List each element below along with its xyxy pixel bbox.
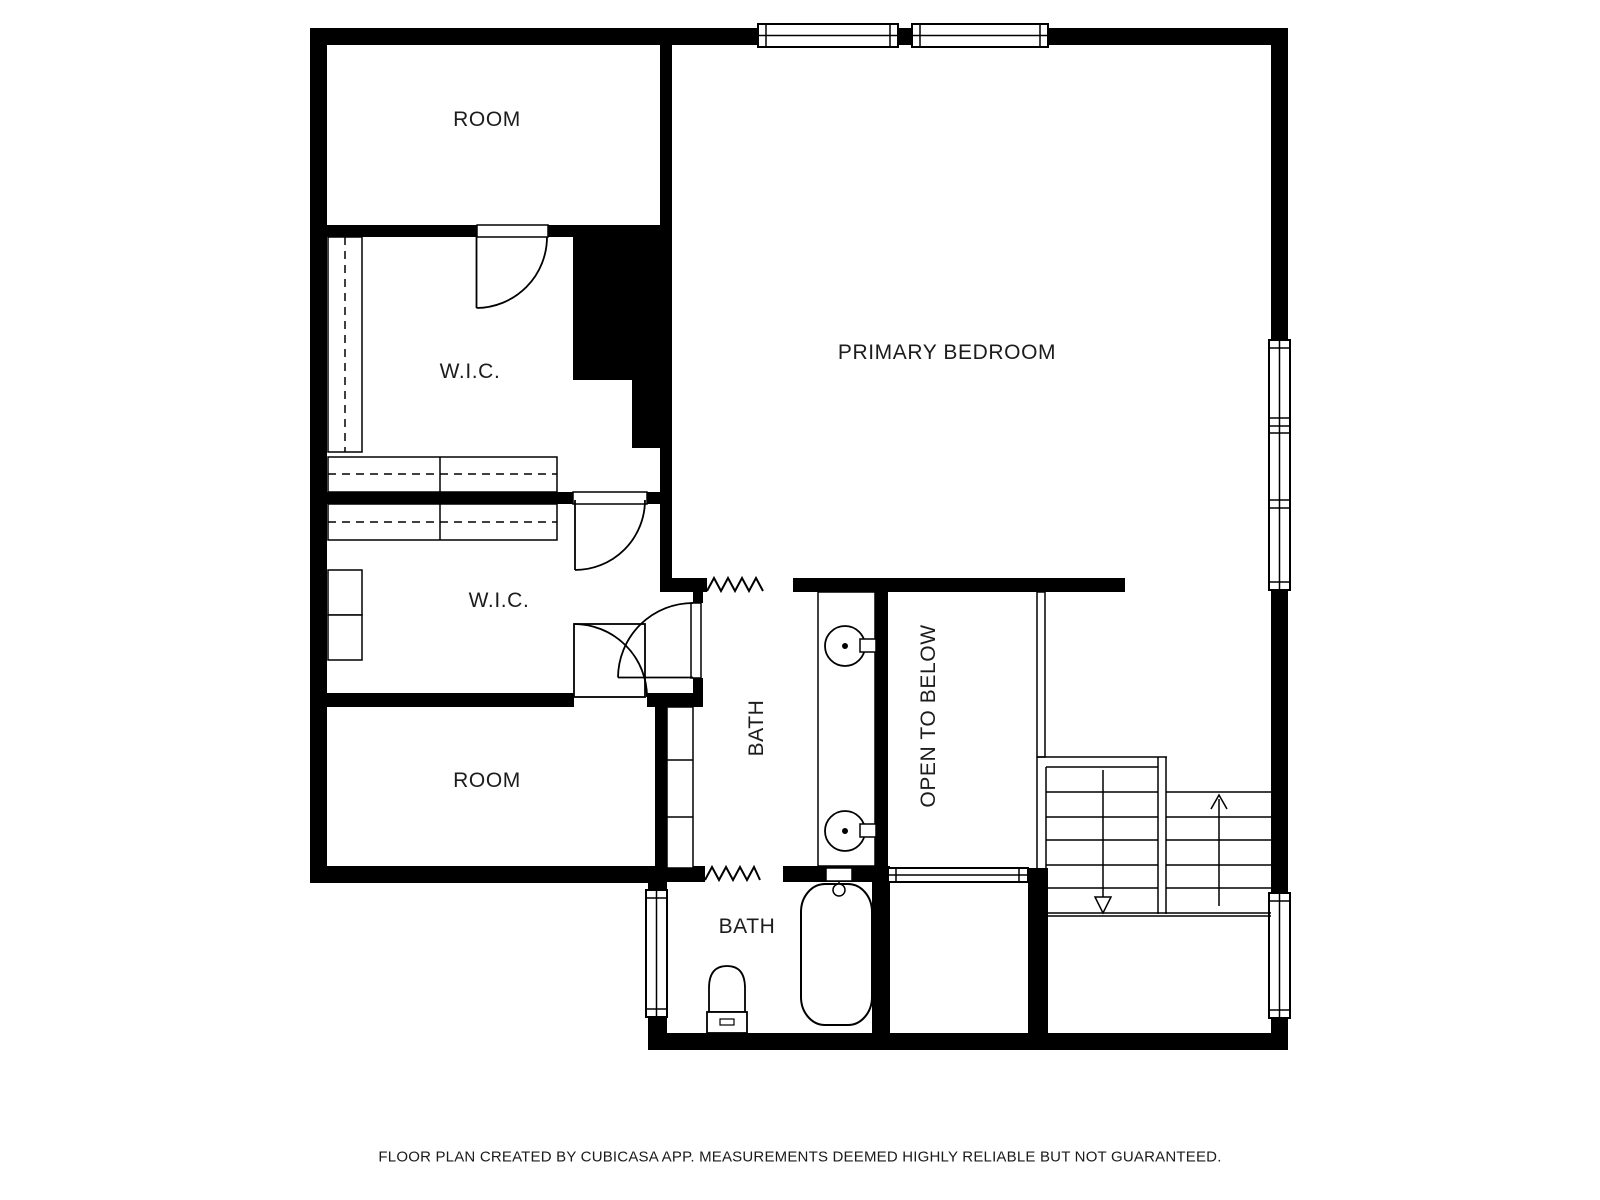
label-wic-lower: W.I.C.	[469, 589, 530, 613]
window-icon	[646, 890, 667, 1017]
closet-shelf-icon	[667, 707, 693, 868]
label-room-top: ROOM	[453, 108, 521, 132]
closet-shelf-icon	[328, 504, 557, 540]
bath-fixtures	[707, 592, 876, 1033]
railing-icon	[888, 868, 1028, 882]
floor-plan: ROOM W.I.C. W.I.C. PRIMARY BEDROOM BATH …	[0, 0, 1600, 1200]
door-swing-icon	[574, 624, 647, 697]
footer-disclaimer: FLOOR PLAN CREATED BY CUBICASA APP. MEAS…	[378, 1149, 1221, 1166]
stairs-up-arrow-icon	[1211, 795, 1227, 906]
door-swing-icon	[573, 492, 647, 570]
window-icon	[1269, 893, 1290, 1018]
window-icon	[912, 24, 1048, 47]
label-bath-lower: BATH	[719, 915, 776, 939]
label-room-bottom: ROOM	[453, 769, 521, 793]
opening-zigzag-icon	[705, 867, 760, 880]
opening-zigzag-icon	[707, 578, 763, 591]
label-wic-upper: W.I.C.	[440, 360, 501, 384]
label-primary-bedroom: PRIMARY BEDROOM	[838, 341, 1056, 365]
floor-plan-drawing	[0, 0, 1600, 1200]
windows	[646, 24, 1290, 1018]
label-open-to-below: OPEN TO BELOW	[917, 624, 941, 807]
closet-shelf-icon	[328, 570, 362, 660]
bathtub-icon	[801, 868, 872, 1025]
door-swing-icon	[477, 225, 549, 308]
toilet-icon	[707, 966, 747, 1033]
label-bath-upper: BATH	[745, 700, 769, 757]
closet-shelf-icon	[328, 237, 362, 452]
railing-icon	[1037, 592, 1045, 757]
window-icon	[1269, 340, 1290, 590]
stairs	[1037, 757, 1271, 916]
closet-shelf-icon	[328, 457, 557, 492]
door-swing-icon	[618, 603, 701, 678]
window-icon	[758, 24, 898, 47]
